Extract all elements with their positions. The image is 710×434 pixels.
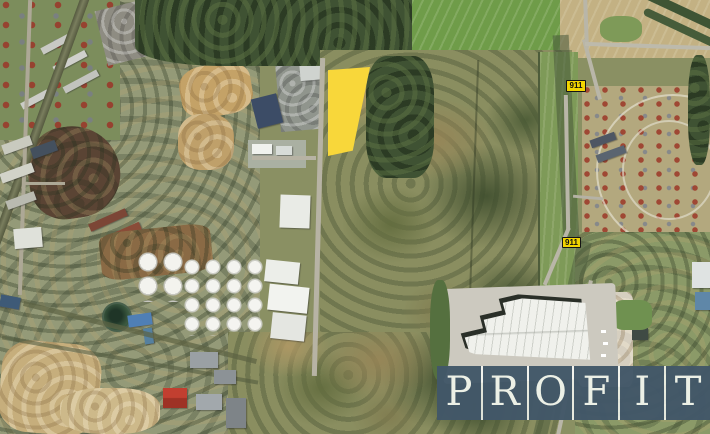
watermark-tile: R <box>483 366 527 420</box>
industrial-cluster-white <box>258 259 324 345</box>
watermark-letter-t: T <box>675 372 702 412</box>
watermark-tile: I <box>620 366 664 420</box>
satellite-map: 911 911 P R O F I T <box>0 0 710 434</box>
route-badge-label: 911 <box>570 82 583 90</box>
watermark-tile: O <box>529 366 573 420</box>
road-spur <box>25 182 65 185</box>
blue-roof-building <box>695 292 710 310</box>
gray-hall <box>190 352 218 368</box>
lawn <box>612 300 652 330</box>
field-patch-green <box>600 16 642 42</box>
tree-strip-east-edge <box>688 55 710 165</box>
shed <box>276 146 292 155</box>
watermark-letter-o: O <box>534 372 567 412</box>
gray-hall <box>226 398 246 428</box>
warehouse-small-white <box>279 194 310 228</box>
white-hall <box>270 312 307 341</box>
watermark-letter-f: F <box>583 372 611 412</box>
red-roof-hall <box>163 388 187 408</box>
watermark-tile: F <box>574 366 618 420</box>
sand-clearing <box>178 114 234 170</box>
parked-truck <box>603 342 608 345</box>
route-badge-911-north: 911 <box>566 80 586 92</box>
white-building <box>692 262 710 288</box>
oil-tank-group-west <box>136 250 188 302</box>
white-hall <box>264 259 300 284</box>
white-building <box>13 227 43 249</box>
access-road-stub <box>252 156 316 160</box>
watermark-tile: T <box>666 366 710 420</box>
watermark-letter-r: R <box>490 372 520 412</box>
watermark-tile: P <box>437 366 481 420</box>
green-verge <box>430 280 450 380</box>
profit-watermark: P R O F I T <box>437 366 710 420</box>
sand-pit <box>60 388 160 434</box>
shed <box>252 144 272 154</box>
gray-hall <box>214 370 236 384</box>
parked-truck <box>601 354 606 357</box>
parked-truck <box>601 330 606 333</box>
white-hall <box>267 284 309 314</box>
oil-tank-group-east <box>182 258 268 336</box>
gray-hall <box>196 394 222 410</box>
watermark-letter-p: P <box>445 372 472 412</box>
watermark-letter-i: I <box>634 372 650 412</box>
forest-east-of-parcel <box>366 56 434 178</box>
route-badge-label: 911 <box>565 239 578 247</box>
route-badge-911-south: 911 <box>562 237 581 248</box>
